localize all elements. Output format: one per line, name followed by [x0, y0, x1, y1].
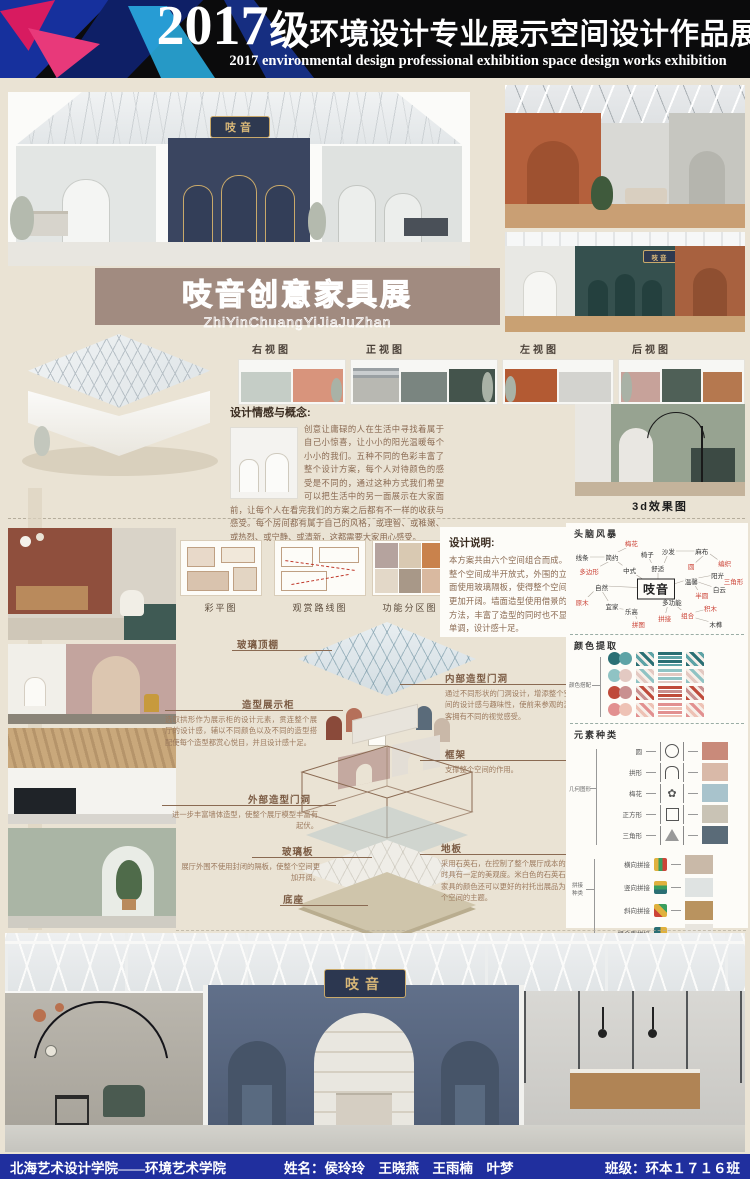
square-shape-icon	[666, 808, 679, 821]
interior-photo-terracotta	[8, 528, 176, 640]
arch-niche-graphic	[588, 280, 608, 316]
arch-graphic	[92, 656, 140, 714]
arch-graphic	[62, 179, 110, 242]
palette-row	[608, 685, 704, 700]
view-left: 左视图	[502, 341, 614, 405]
arch-graphic	[221, 175, 257, 242]
terracotta-wall-graphic	[675, 246, 745, 316]
brand-sign: 吱音	[210, 116, 270, 138]
wall-decor-graphic	[55, 1003, 64, 1012]
note-glass-panel: 展厅外围不使用封闭的隔板，使整个空间更加开阔。	[178, 861, 320, 884]
chair-graphic	[144, 694, 159, 712]
pattern-swatch	[686, 686, 704, 700]
footer-school: 北海艺术设计学院——环境艺术学院	[10, 1157, 226, 1177]
pendant-light-graphic	[602, 1007, 604, 1029]
kitchen-space-graphic	[524, 991, 745, 1125]
brainstorm-node: 麻布	[694, 546, 709, 556]
sideboard-graphic	[16, 586, 88, 610]
design-concept-section: 设计情感与概念: 创意让庸碌的人在生活中寻找着属于自己小惊喜，让小小的阳光温暖每…	[230, 404, 444, 532]
footer-names: 姓名：侯玲玲 王晓燕 王雨楠 叶梦	[284, 1157, 514, 1177]
elements-group2-label: 拼接种类	[572, 881, 584, 897]
brainstorm-node: 自然	[594, 582, 609, 592]
brainstorm-node: 拼接	[657, 613, 672, 623]
pattern-swatch	[636, 686, 654, 700]
plan-caption: 观赏路线图	[274, 601, 366, 614]
cabinet-graphic	[691, 448, 735, 482]
brand-sign: 吱音	[643, 250, 677, 263]
label-glass-roof: 玻璃顶棚	[237, 637, 279, 651]
arch-graphic	[24, 677, 46, 706]
element-photo	[702, 742, 728, 760]
brainstorm-node: 拼图	[631, 619, 646, 629]
right-room-graphic	[322, 146, 462, 242]
pattern-swatch	[686, 669, 704, 683]
brainstorm-center: 吱音	[637, 578, 675, 599]
elements-heading: 元素种类	[574, 728, 618, 741]
view-label: 正视图	[350, 341, 498, 356]
3d-effect-render	[575, 404, 745, 496]
concept-inset-render	[230, 427, 298, 499]
concrete-lounge-graphic	[5, 993, 203, 1125]
arch-niche-graphic	[441, 1041, 499, 1125]
brainstorm-node: 宜家	[605, 601, 620, 611]
note-display-cabinet: 选取拱形作为展示柜的设计元素，贯连整个展厅的设计感，辅以不同颜色以及不同的造型搭…	[165, 714, 317, 748]
tree-graphic	[34, 426, 50, 456]
wood-floor-graphic	[505, 204, 745, 228]
arch-graphic	[183, 185, 213, 242]
plan-caption: 彩平图	[180, 601, 262, 614]
brainstorm-node: 半圆	[694, 590, 709, 600]
label-floor: 地板	[441, 841, 462, 855]
brainstorm-node: 线条	[575, 552, 590, 562]
view-front: 正视图	[350, 341, 498, 405]
stripe-swatch	[658, 703, 682, 717]
front-elevation-render: 吱音	[8, 92, 470, 266]
counter-graphic	[14, 788, 76, 814]
circle-shape-icon	[665, 744, 679, 758]
join-photo	[685, 901, 713, 920]
view-right: 右视图	[238, 341, 346, 405]
wood-ceiling-graphic	[8, 728, 176, 768]
page-title: 2017 级 环境设计专业展示空间设计作品展	[170, 0, 746, 54]
element-row: 拱形	[600, 762, 728, 782]
join-photo	[685, 855, 713, 874]
header-banner: 2017 级 环境设计专业展示空间设计作品展 2017 environmenta…	[0, 0, 750, 78]
label-glass-panel: 玻璃板	[282, 844, 314, 858]
interior-render-1	[505, 85, 745, 228]
element-photo	[702, 763, 728, 781]
isometric-model-render	[8, 330, 230, 488]
arc-lamp-graphic	[33, 1001, 169, 1137]
lamp-stem-graphic	[701, 426, 703, 482]
elevation-thumbnail	[238, 359, 346, 405]
element-photo	[702, 826, 728, 844]
brainstorm-node: 原木	[575, 597, 590, 607]
elevation-thumbnail	[502, 359, 614, 405]
join-row: 横向拼接	[596, 853, 713, 875]
brainstorm-node: 组合	[680, 610, 695, 620]
tree-graphic	[482, 372, 493, 402]
view-label: 左视图	[502, 341, 614, 356]
final-render-large: 吱音	[5, 933, 745, 1152]
color-swatch	[619, 669, 632, 682]
palette-row	[608, 702, 704, 717]
interior-photo-green	[8, 828, 176, 928]
wall-clock-graphic	[36, 533, 44, 541]
interior-render-2: 吱音	[505, 232, 745, 332]
floor-graphic	[5, 1125, 745, 1152]
arch-graphic	[265, 453, 289, 492]
counter-graphic	[28, 211, 68, 236]
title-year: 2017	[157, 0, 269, 54]
view-label: 右视图	[238, 341, 346, 356]
element-photo	[702, 784, 728, 802]
design-description-body: 本方案共由六个空间组合而成。整个空间成半开放式，外围的立面使用玻璃隔板，使得整个…	[449, 554, 567, 636]
panel-divider	[570, 634, 744, 635]
exhibition-title-pinyin: ZhiYinChuangYiJiaJuZhan	[95, 314, 500, 330]
render3d-caption: 3d效果图	[575, 498, 745, 514]
tree-graphic	[621, 372, 632, 402]
wood-floor-graphic	[505, 316, 745, 332]
arch-graphic	[338, 185, 376, 242]
title-grade: 级	[270, 0, 310, 56]
element-row: 正方形	[600, 804, 728, 824]
exhibition-title-banner: 吱音创意家具展 ZhiYinChuangYiJiaJuZhan	[95, 268, 500, 325]
chair-graphic	[120, 590, 144, 616]
triangle-shape-icon	[665, 829, 679, 841]
counter-graphic	[336, 1093, 392, 1125]
plan-zoning	[372, 540, 448, 596]
stripe-swatch	[658, 686, 682, 700]
brainstorm-node: 乐高	[624, 606, 639, 616]
arch-shape-icon	[665, 766, 679, 779]
brainstorm-node: 积木	[703, 603, 718, 613]
plan-color	[180, 540, 262, 596]
blue-facade-graphic: 吱音	[208, 985, 519, 1125]
arch-graphic	[239, 459, 259, 492]
join-icon	[654, 858, 667, 871]
tree-graphic	[331, 378, 342, 402]
armchair-graphic	[103, 1085, 145, 1117]
design-description-section: 设计说明: 本方案共由六个空间组合而成。整个空间成半开放式，外围的立面使用玻璃隔…	[440, 527, 576, 637]
arch-graphic	[689, 151, 725, 205]
note-frame: 支撑整个空间的作用。	[445, 764, 571, 775]
join-icon	[654, 881, 667, 894]
stripe-swatch	[658, 652, 682, 666]
pendant-light-graphic	[652, 1007, 654, 1029]
pattern-swatch	[636, 703, 654, 717]
brainstorm-node: 椅子	[640, 549, 655, 559]
brainstorm-node: 舒适	[650, 563, 665, 573]
label-display-cabinet: 造型展示柜	[242, 697, 295, 711]
join-row: 斜向拼接	[596, 899, 713, 921]
brainstorm-node: 编织	[717, 558, 732, 568]
right-analysis-panel: 头脑风暴 梅花线条简约椅子沙发麻布编织圆多边形中式舒适阳光温馨白云三角形半圆自然…	[566, 523, 748, 928]
plant-pot-graphic	[122, 899, 136, 910]
brainstorm-node: 温馨	[684, 576, 699, 586]
view-back: 后视图	[618, 341, 745, 405]
brainstorm-node: 三角形	[723, 576, 745, 586]
brainstorm-node: 圆	[687, 561, 696, 571]
arch-graphic	[693, 268, 727, 316]
element-row: 圆	[600, 741, 728, 761]
arch-niche-graphic	[642, 280, 662, 316]
terracotta-wall-graphic	[505, 113, 601, 205]
tree-graphic	[10, 196, 34, 240]
color-swatch	[619, 686, 632, 699]
lamp-bulb-graphic	[45, 1045, 57, 1057]
note-inner-door: 通过不同形状的门洞设计，增添整个空间的设计感与趣味性，使前来参观的游客拥有不同的…	[445, 688, 571, 722]
brainstorm-node: 中式	[622, 565, 637, 575]
ceiling-graphic	[505, 232, 745, 246]
view-label: 后视图	[618, 341, 745, 356]
join-row: 竖向拼接	[596, 876, 713, 898]
note-outer-door: 进一步丰富墙体造型，使整个展厅模型丰富有起伏。	[172, 809, 318, 832]
wall-graphic	[505, 246, 575, 316]
palette-row	[608, 668, 704, 683]
elevation-thumbnail	[350, 359, 498, 405]
brainstorm-node: 简约	[605, 552, 620, 562]
sofa-graphic	[625, 188, 667, 204]
design-description-heading: 设计说明:	[449, 535, 567, 550]
pattern-swatch	[686, 703, 704, 717]
island-counter-graphic	[570, 1069, 700, 1109]
brainstorm-mindmap: 梅花线条简约椅子沙发麻布编织圆多边形中式舒适阳光温馨白云三角形半圆自然原木宜家多…	[568, 538, 744, 630]
note-floor: 采用石英石，在控制了整个展厅成本的同时具有一定的美观度。米白色的石英石与家具的颜…	[441, 858, 573, 903]
element-row: 梅花	[600, 783, 728, 803]
wall-decor-graphic	[33, 1009, 46, 1022]
join-photo	[685, 878, 713, 897]
desk-graphic	[404, 218, 448, 236]
brainstorm-node: 多边形	[578, 566, 600, 576]
plan-route	[274, 540, 366, 596]
poster: 2017 级 环境设计专业展示空间设计作品展 2017 environmenta…	[0, 0, 750, 1179]
pattern-swatch	[636, 669, 654, 683]
color-swatch	[619, 652, 632, 665]
tree-graphic	[505, 376, 516, 402]
label-outer-door: 外部造型门洞	[248, 792, 311, 806]
arch-graphic	[265, 185, 295, 242]
color-swatch	[619, 703, 632, 716]
left-room-graphic	[16, 146, 156, 242]
stripe-swatch	[658, 669, 682, 683]
plan-caption: 功能分区图	[372, 601, 448, 614]
label-frame: 框架	[445, 747, 466, 761]
plum-shape-icon	[667, 784, 676, 802]
floor-graphic	[8, 242, 470, 266]
arch-niche-graphic	[228, 1041, 286, 1125]
pattern-swatch	[686, 652, 704, 666]
element-row: 三角形	[600, 825, 728, 845]
wall-graphic	[669, 113, 745, 205]
elevation-thumbnail	[618, 359, 745, 405]
arch-niche-graphic	[615, 274, 635, 316]
plant-graphic	[116, 860, 142, 900]
tree-graphic	[308, 202, 326, 240]
exhibition-title: 吱音创意家具展	[95, 270, 500, 314]
pattern-swatch	[636, 652, 654, 666]
elements-group1-label: 几何图形	[569, 785, 597, 793]
interior-photo-arch	[8, 644, 176, 724]
label-base: 底座	[283, 892, 304, 906]
footer-bar: 北海艺术设计学院——环境艺术学院 姓名：侯玲玲 王晓燕 王雨楠 叶梦 班级：环本…	[0, 1154, 750, 1179]
panel-divider	[570, 723, 744, 724]
interior-photo-hallway	[8, 728, 176, 824]
concept-heading: 设计情感与概念:	[230, 404, 444, 420]
arch-graphic	[523, 271, 557, 316]
floor-graphic	[575, 482, 745, 496]
section-divider	[176, 930, 746, 931]
join-icon	[654, 904, 667, 917]
brainstorm-node: 梅花	[624, 538, 639, 548]
element-photo	[702, 805, 728, 823]
footer-class: 班级：环本１７１６班	[605, 1157, 740, 1177]
brainstorm-node: 木榫	[708, 619, 723, 629]
section-divider	[8, 518, 745, 519]
plant-graphic	[591, 176, 613, 210]
arch-graphic	[527, 141, 579, 205]
center-facade-graphic	[168, 138, 310, 242]
title-cn: 环境设计专业展示空间设计作品展	[310, 11, 750, 53]
brand-sign: 吱音	[324, 969, 406, 998]
wall-clock-graphic	[20, 536, 31, 547]
brainstorm-node: 沙发	[661, 546, 676, 556]
page-subtitle: 2017 environmental design professional e…	[210, 53, 746, 70]
palette-row	[608, 651, 704, 666]
label-inner-door: 内部造型门洞	[445, 671, 508, 685]
side-table-graphic	[55, 1095, 89, 1125]
